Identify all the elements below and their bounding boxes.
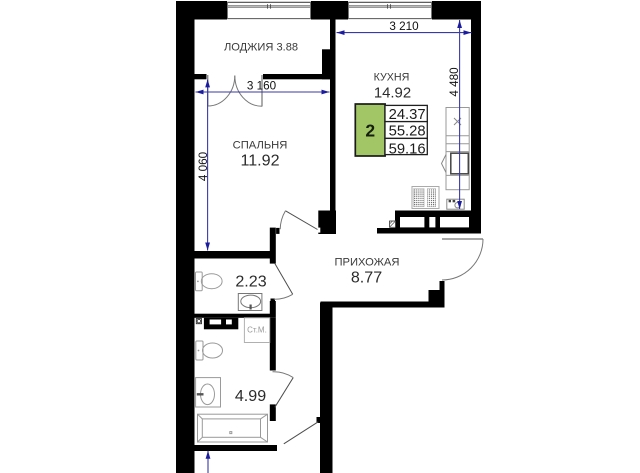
- svg-text:ЛОДЖИЯ 3.88: ЛОДЖИЯ 3.88: [224, 42, 298, 54]
- svg-text:59.16: 59.16: [389, 141, 426, 157]
- svg-text:14.92: 14.92: [374, 86, 411, 102]
- svg-text:3 160: 3 160: [247, 79, 277, 92]
- svg-text:8.77: 8.77: [351, 268, 382, 286]
- svg-text:3 210: 3 210: [389, 20, 419, 33]
- svg-text:КУХНЯ: КУХНЯ: [374, 72, 410, 84]
- svg-text:11.92: 11.92: [240, 151, 279, 169]
- svg-text:4 060: 4 060: [197, 151, 210, 181]
- svg-text:Ст.М.: Ст.М.: [247, 326, 267, 335]
- svg-text:24.37: 24.37: [389, 107, 426, 123]
- svg-text:4.99: 4.99: [235, 387, 266, 405]
- svg-text:ПРИХОЖАЯ: ПРИХОЖАЯ: [335, 257, 400, 269]
- svg-text:55.28: 55.28: [389, 124, 426, 140]
- svg-text:2: 2: [365, 121, 375, 141]
- svg-text:2.23: 2.23: [235, 272, 266, 290]
- svg-text:4 480: 4 480: [448, 67, 461, 97]
- svg-text:СПАЛЬНЯ: СПАЛЬНЯ: [233, 139, 288, 151]
